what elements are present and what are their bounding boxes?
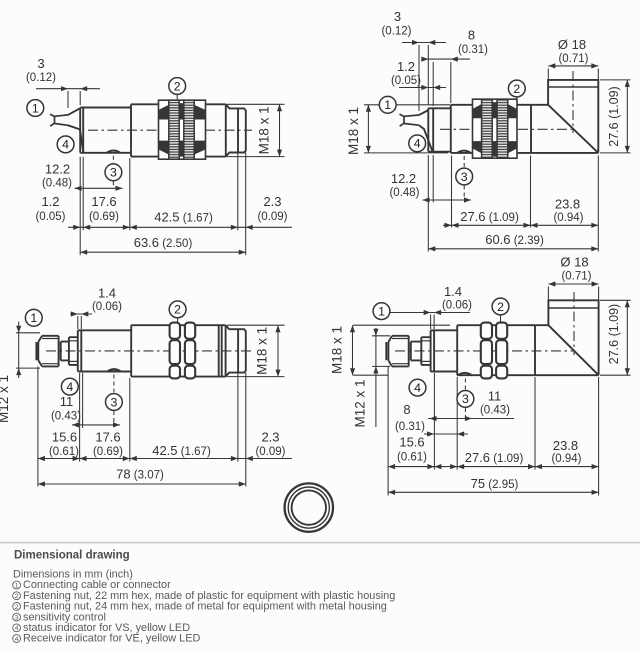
svg-text:3: 3 bbox=[394, 9, 401, 24]
svg-text:(0.69): (0.69) bbox=[89, 211, 119, 223]
svg-text:4: 4 bbox=[414, 381, 421, 395]
svg-text:(0.12): (0.12) bbox=[381, 26, 411, 38]
svg-text:(0.94): (0.94) bbox=[551, 453, 581, 465]
svg-text:15.6: 15.6 bbox=[399, 435, 424, 450]
svg-text:(0.12): (0.12) bbox=[26, 72, 56, 84]
svg-text:27.6 (1.09): 27.6 (1.09) bbox=[465, 450, 524, 465]
svg-text:1.2: 1.2 bbox=[397, 59, 415, 74]
svg-text:(0.09): (0.09) bbox=[257, 211, 287, 223]
svg-text:8: 8 bbox=[403, 402, 410, 417]
svg-text:1.4: 1.4 bbox=[98, 286, 116, 301]
svg-text:63.6 (2.50): 63.6 (2.50) bbox=[134, 235, 193, 250]
svg-text:(0.06): (0.06) bbox=[442, 300, 472, 312]
svg-text:42.5 (1.67): 42.5 (1.67) bbox=[152, 443, 211, 458]
svg-text:(0.43): (0.43) bbox=[480, 405, 510, 417]
svg-text:(0.48): (0.48) bbox=[389, 187, 419, 199]
svg-text:1: 1 bbox=[15, 582, 19, 589]
svg-text:42.5 (1.67): 42.5 (1.67) bbox=[154, 210, 213, 225]
svg-text:27.6 (1.09): 27.6 (1.09) bbox=[460, 209, 519, 224]
svg-text:12.2: 12.2 bbox=[45, 162, 70, 177]
svg-text:(0.61): (0.61) bbox=[397, 452, 427, 464]
svg-text:M18 x 1: M18 x 1 bbox=[257, 106, 272, 154]
svg-text:Ø 18: Ø 18 bbox=[560, 255, 588, 270]
svg-text:27.6 (1.09): 27.6 (1.09) bbox=[607, 304, 621, 364]
svg-text:12.2: 12.2 bbox=[391, 171, 416, 186]
svg-text:27.6 (1.09): 27.6 (1.09) bbox=[607, 86, 621, 146]
svg-text:M18 x 1: M18 x 1 bbox=[330, 326, 345, 374]
svg-text:60.6 (2.39): 60.6 (2.39) bbox=[485, 232, 544, 247]
svg-text:17.6: 17.6 bbox=[95, 430, 120, 445]
svg-text:(0.05): (0.05) bbox=[391, 75, 421, 87]
svg-text:11: 11 bbox=[60, 394, 74, 409]
svg-text:3: 3 bbox=[461, 170, 468, 184]
svg-text:Receive indicator for VE, yell: Receive indicator for VE, yellow LED bbox=[23, 633, 200, 645]
svg-text:2: 2 bbox=[15, 604, 19, 611]
svg-text:15.6: 15.6 bbox=[52, 430, 77, 445]
svg-text:(0.71): (0.71) bbox=[558, 53, 588, 65]
svg-text:1: 1 bbox=[32, 101, 39, 115]
svg-text:23.8: 23.8 bbox=[555, 197, 580, 212]
svg-text:3: 3 bbox=[462, 392, 469, 406]
svg-text:78 (3.07): 78 (3.07) bbox=[116, 467, 164, 482]
svg-text:1: 1 bbox=[30, 311, 37, 325]
svg-text:4: 4 bbox=[15, 625, 19, 632]
svg-text:(0.48): (0.48) bbox=[42, 177, 72, 189]
svg-text:(0.31): (0.31) bbox=[395, 421, 425, 433]
svg-text:(0.94): (0.94) bbox=[553, 212, 583, 224]
svg-text:Dimensional drawing: Dimensional drawing bbox=[14, 550, 130, 562]
svg-text:(0.43): (0.43) bbox=[51, 411, 81, 423]
svg-text:23.8: 23.8 bbox=[553, 438, 578, 453]
svg-text:8: 8 bbox=[468, 28, 475, 43]
svg-text:3: 3 bbox=[15, 615, 19, 622]
svg-text:(0.71): (0.71) bbox=[561, 271, 591, 283]
svg-text:1.2: 1.2 bbox=[41, 194, 59, 209]
svg-text:1: 1 bbox=[384, 98, 391, 112]
svg-text:3: 3 bbox=[37, 56, 44, 71]
svg-text:1.4: 1.4 bbox=[444, 284, 462, 299]
svg-text:2: 2 bbox=[15, 593, 19, 600]
svg-text:4: 4 bbox=[15, 636, 19, 643]
svg-text:(0.31): (0.31) bbox=[458, 44, 488, 56]
svg-text:M12 x 1: M12 x 1 bbox=[0, 375, 11, 423]
svg-text:4: 4 bbox=[62, 138, 69, 152]
svg-text:M12 x 1: M12 x 1 bbox=[353, 379, 368, 427]
svg-text:1: 1 bbox=[378, 304, 385, 318]
svg-text:3: 3 bbox=[110, 395, 117, 409]
svg-text:2.3: 2.3 bbox=[263, 194, 281, 209]
svg-text:(0.61): (0.61) bbox=[49, 446, 79, 458]
svg-text:4: 4 bbox=[66, 380, 73, 394]
svg-text:11: 11 bbox=[488, 389, 502, 404]
svg-text:2: 2 bbox=[513, 82, 520, 96]
svg-text:3: 3 bbox=[110, 166, 117, 180]
svg-text:75 (2.95): 75 (2.95) bbox=[471, 476, 519, 491]
svg-text:(0.05): (0.05) bbox=[35, 211, 65, 223]
svg-text:2.3: 2.3 bbox=[261, 430, 279, 445]
svg-text:Ø 18: Ø 18 bbox=[558, 37, 586, 52]
svg-text:2: 2 bbox=[497, 300, 504, 314]
svg-text:4: 4 bbox=[414, 137, 421, 151]
svg-text:2: 2 bbox=[174, 79, 181, 93]
svg-text:2: 2 bbox=[174, 303, 181, 317]
svg-text:(0.06): (0.06) bbox=[92, 301, 122, 313]
svg-text:(0.09): (0.09) bbox=[255, 446, 285, 458]
svg-text:(0.69): (0.69) bbox=[93, 446, 123, 458]
svg-text:17.6: 17.6 bbox=[91, 194, 116, 209]
svg-text:M18 x 1: M18 x 1 bbox=[346, 107, 361, 155]
svg-text:M18 x 1: M18 x 1 bbox=[255, 327, 270, 375]
